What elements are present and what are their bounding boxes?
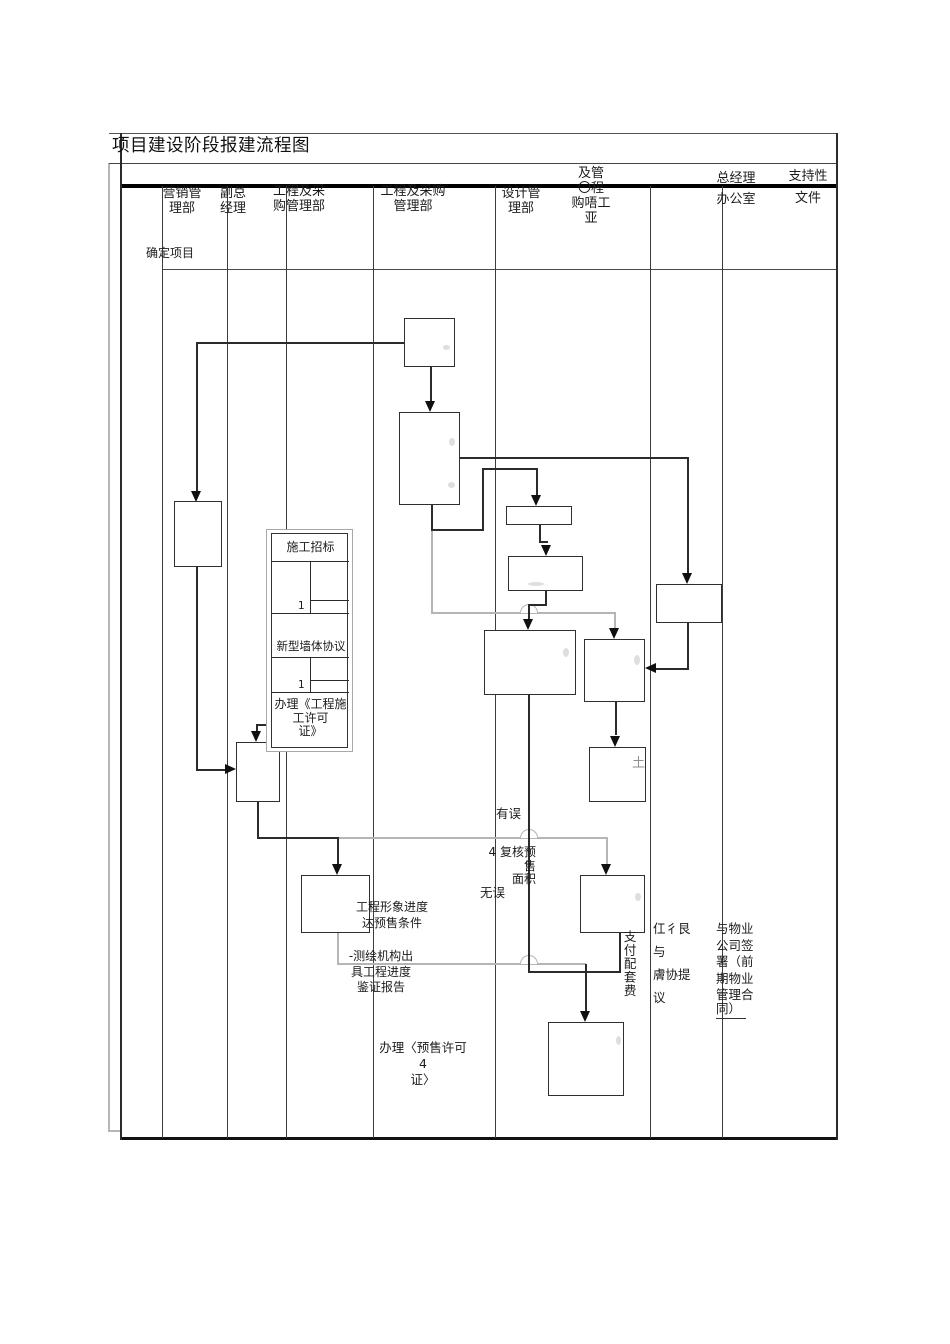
arrow-down [251, 731, 261, 742]
lane-header-eng-procurement-1: 工程及采 购管理部 [260, 184, 338, 214]
flow-line [257, 837, 338, 839]
lane-header-marketing: 营销管 理部 [152, 186, 212, 216]
process-box [580, 875, 645, 933]
label-no-error: 无误 [480, 885, 505, 901]
scan-artifact [634, 655, 640, 665]
flow-line [528, 971, 586, 973]
group-section-construction-bidding: 施工招标 [272, 540, 349, 555]
flow-line [536, 468, 538, 495]
flow-line [482, 468, 484, 531]
group-divider [272, 613, 349, 614]
arrow-down [191, 491, 201, 502]
arrow-down [531, 495, 541, 506]
flow-line [585, 971, 620, 973]
arrow-down [580, 1011, 590, 1022]
group-marker-2: 1 [298, 679, 305, 692]
arrow-right [225, 764, 236, 774]
label-error: 有误 [496, 806, 521, 822]
lane-header-gm-office: 总经理 办公室 [705, 168, 767, 210]
process-box [656, 584, 722, 623]
flowchart-canvas: 项目建设阶段报建流程图 营销管 理部 副总 经理 工程及采 购管理部 工程及采购… [0, 0, 950, 1344]
process-box [506, 506, 572, 525]
flow-line [197, 342, 404, 344]
scan-artifact [616, 1036, 621, 1045]
scan-artifact [449, 438, 455, 446]
flow-line [615, 702, 617, 735]
flow-line [482, 468, 538, 470]
flow-line [430, 367, 432, 402]
process-box [174, 501, 222, 567]
flow-line [431, 529, 484, 531]
flow-line [687, 457, 689, 573]
flow-line [528, 604, 546, 606]
process-box [508, 556, 583, 591]
process-box: 土 [589, 747, 646, 802]
arrow-down [609, 628, 619, 639]
group-divider [310, 561, 311, 614]
lane-header-deputy-gm: 副总 经理 [211, 186, 255, 216]
scan-artifact [635, 893, 641, 901]
label-property-sign-tail: 同） [716, 1001, 746, 1019]
title-row-rule [109, 163, 838, 164]
group-divider [310, 680, 349, 681]
label-progress-condition: 工程形象进度 达预售条件 [344, 899, 440, 931]
flow-line [257, 802, 259, 839]
scan-artifact [443, 345, 450, 350]
group-divider [310, 600, 349, 601]
flow-line [460, 457, 689, 459]
label-presale-permit: 办理〈预售许可 4 证〉 [374, 1040, 472, 1088]
process-box [399, 412, 460, 505]
phase-label-confirm-project: 确定项目 [146, 246, 194, 261]
flow-line [196, 567, 198, 771]
outer-frame-left [108, 163, 110, 1131]
scan-artifact [448, 482, 455, 488]
flow-line [431, 505, 433, 531]
label-pay-supporting-fee: 支付配套费 [621, 930, 637, 998]
group-divider [310, 657, 311, 693]
soil-mark: 土 [632, 756, 645, 772]
loop-line [606, 837, 608, 865]
flow-line [539, 541, 548, 543]
process-box [584, 639, 645, 702]
process-box [404, 318, 455, 367]
flow-line [196, 342, 198, 491]
arrow-down [610, 736, 620, 747]
loop-line [338, 837, 607, 839]
lane-divider-1 [162, 186, 163, 1138]
group-box-inner: 施工招标 1 新型墙体协议 1 办理《工程施 工许可 证》 [271, 533, 348, 748]
table-left-border [120, 133, 122, 1140]
flow-line [687, 622, 689, 670]
lane-header-garbled: 及管 〇程 购唔工 亚 [560, 166, 622, 226]
lane-divider-2 [227, 186, 228, 1138]
label-property-sign: 与物业 公司签 署（前 期物业 管理合 [716, 921, 772, 1004]
group-divider [272, 692, 349, 693]
arrow-down [332, 864, 342, 875]
arrow-down [682, 573, 692, 584]
process-box [548, 1022, 624, 1096]
table-right-border [836, 133, 838, 1140]
flow-line [655, 668, 688, 670]
group-marker-1: 1 [298, 600, 305, 613]
lane-divider-6 [650, 186, 651, 1138]
scan-artifact [528, 582, 544, 586]
flow-line [337, 837, 339, 865]
group-section-wall-agreement: 新型墙体协议 [269, 639, 353, 653]
arrow-down [541, 545, 551, 556]
lane-header-design: 设计管 理部 [493, 186, 549, 216]
lane-header-support-docs: 支持性 文件 [780, 166, 836, 210]
lane-header-eng-procurement-2: 工程及采购 管理部 [368, 184, 458, 214]
arrow-down [425, 401, 435, 412]
arrow-down [601, 864, 611, 875]
label-recheck-area: 4 复核预售 面积 [478, 846, 536, 887]
label-garbled-note: 仜彳艮 与 膚协提 议 [653, 917, 691, 1009]
process-box [484, 630, 576, 695]
page-title: 项目建设阶段报建流程图 [112, 136, 310, 158]
flow-line [528, 604, 530, 619]
loop-line [431, 530, 433, 613]
group-section-construction-permit: 办理《工程施 工许可 证》 [272, 698, 349, 739]
table-top-border [109, 133, 838, 134]
arrow-down [523, 619, 533, 630]
flow-line [528, 695, 530, 973]
label-survey-report: -测绘机构出 具工程进度 鉴证报告 [338, 949, 424, 996]
scan-artifact [563, 648, 569, 657]
first-row-rule [162, 269, 838, 270]
arrow-left [645, 663, 656, 673]
